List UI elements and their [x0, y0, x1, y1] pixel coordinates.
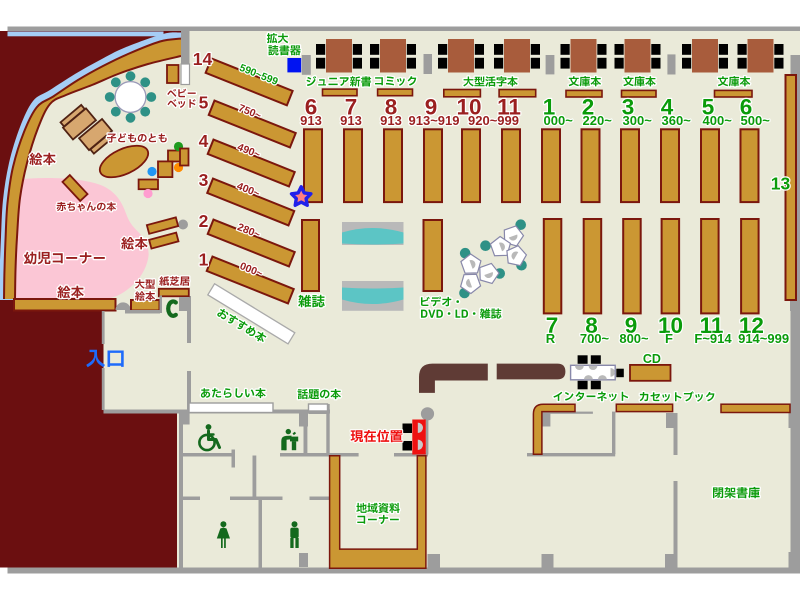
svg-text:914~999: 914~999 [738, 331, 789, 346]
svg-text:3: 3 [199, 170, 209, 190]
svg-text:300~: 300~ [623, 113, 653, 128]
svg-text:5: 5 [199, 93, 209, 113]
svg-text:700~: 700~ [580, 331, 610, 346]
svg-text:500~: 500~ [741, 113, 771, 128]
svg-text:14: 14 [193, 49, 213, 69]
svg-text:R: R [546, 331, 556, 346]
svg-text:F: F [665, 331, 673, 346]
svg-text:4: 4 [199, 131, 209, 151]
svg-text:913: 913 [340, 113, 362, 128]
svg-text:920~999: 920~999 [468, 113, 519, 128]
svg-text:800~: 800~ [619, 331, 649, 346]
svg-text:13: 13 [771, 174, 791, 194]
svg-text:400~: 400~ [703, 113, 733, 128]
svg-text:913~919: 913~919 [409, 113, 460, 128]
svg-text:000~: 000~ [544, 113, 574, 128]
svg-text:2: 2 [199, 211, 209, 231]
svg-text:913: 913 [380, 113, 402, 128]
svg-text:CD: CD [643, 352, 661, 366]
svg-text:1: 1 [199, 250, 209, 270]
svg-text:220~: 220~ [583, 113, 613, 128]
svg-text:913: 913 [300, 113, 322, 128]
svg-text:360~: 360~ [662, 113, 692, 128]
svg-text:F~914: F~914 [694, 331, 732, 346]
